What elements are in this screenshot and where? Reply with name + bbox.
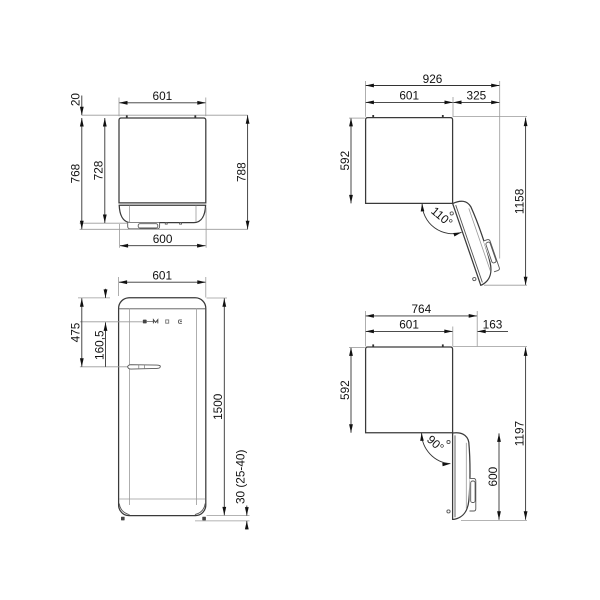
svg-text:160,5: 160,5 [92,330,106,360]
svg-text:20: 20 [69,93,83,107]
svg-text:764: 764 [411,302,431,316]
svg-text:592: 592 [338,380,352,400]
svg-text:1500: 1500 [211,393,225,420]
svg-text:592: 592 [338,151,352,171]
svg-text:1158: 1158 [512,188,526,214]
svg-text:600: 600 [486,466,500,486]
svg-text:163: 163 [483,318,503,332]
svg-text:30 (25-40): 30 (25-40) [234,450,248,504]
svg-text:600: 600 [153,232,173,246]
svg-text:325: 325 [467,89,487,103]
svg-text:601: 601 [152,269,172,283]
svg-text:601: 601 [399,318,419,332]
svg-text:475: 475 [69,322,83,342]
svg-text:768: 768 [69,163,83,183]
svg-text:601: 601 [153,89,173,103]
svg-text:926: 926 [423,72,443,86]
svg-text:1197: 1197 [512,421,526,446]
svg-text:788: 788 [234,162,248,182]
svg-text:601: 601 [399,89,419,103]
svg-text:728: 728 [92,160,106,180]
